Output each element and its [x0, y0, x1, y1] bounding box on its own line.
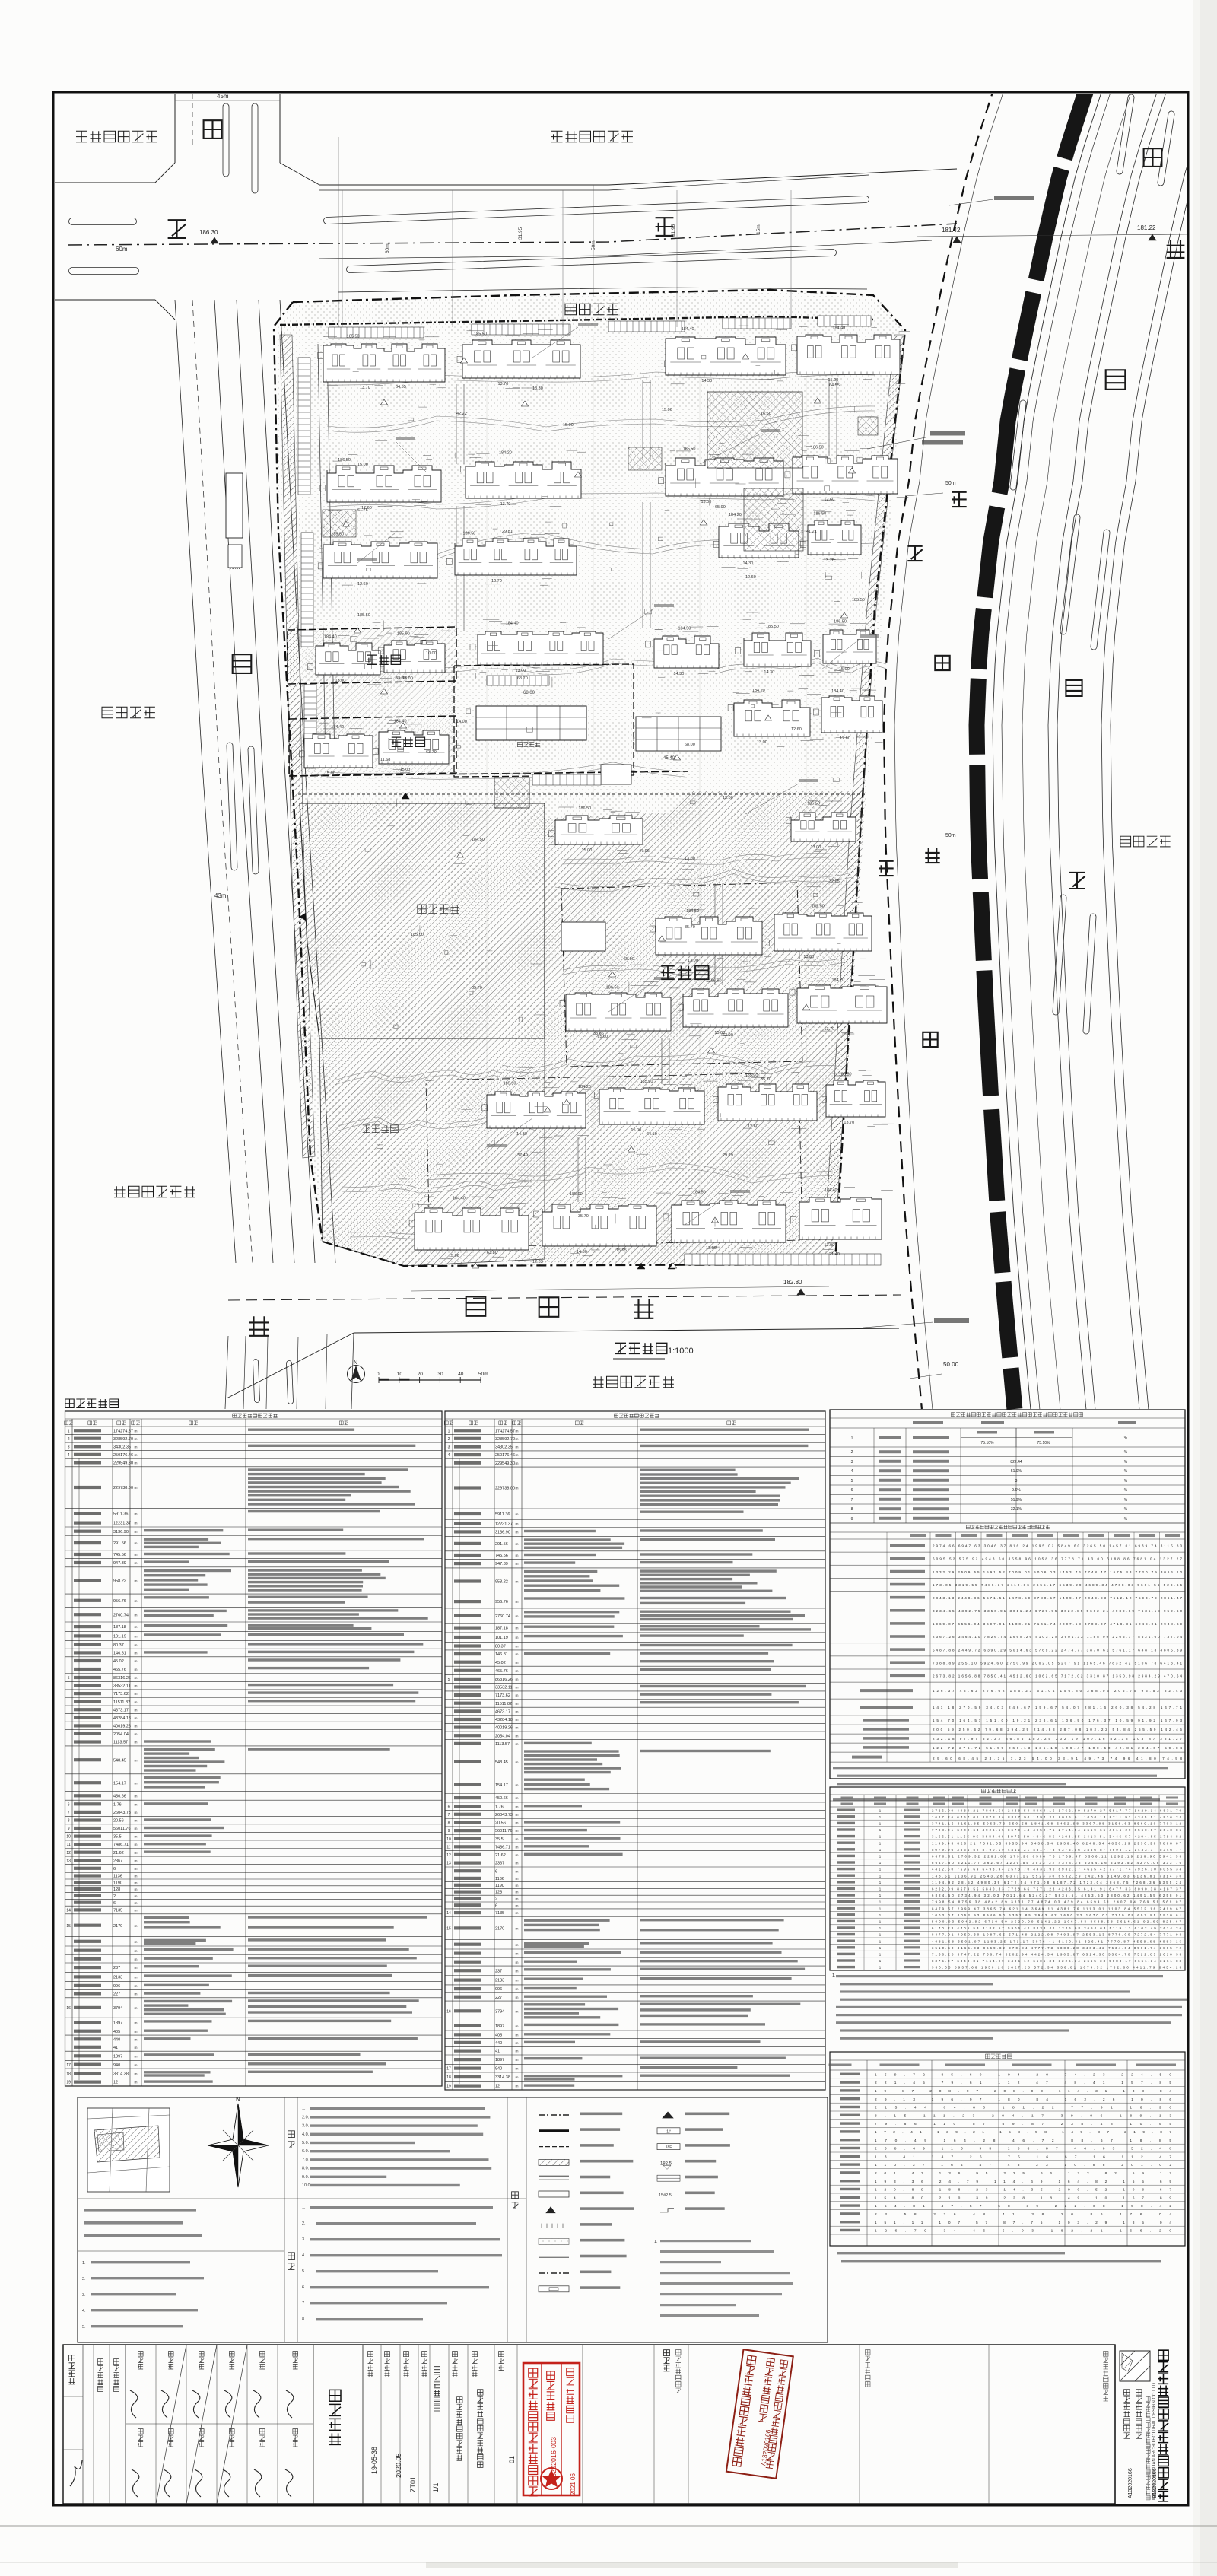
svg-text:6: 6 — [448, 1805, 450, 1809]
svg-text:26043.73: 26043.73 — [113, 1811, 131, 1815]
svg-text:996: 996 — [113, 1984, 120, 1989]
svg-text:m: m — [516, 1870, 519, 1874]
svg-text:5.0.: 5.0. — [302, 2141, 310, 2145]
svg-text:17: 17 — [446, 2067, 451, 2072]
svg-text:947.39: 947.39 — [495, 1562, 508, 1566]
svg-text:186.50: 186.50 — [463, 531, 476, 536]
svg-text:64.55: 64.55 — [396, 385, 406, 390]
svg-text:11: 11 — [446, 1845, 450, 1849]
svg-text:m: m — [516, 1543, 519, 1547]
svg-text:56011.76: 56011.76 — [495, 1829, 513, 1833]
svg-text:m: m — [135, 1852, 138, 1856]
svg-text:8647.60 2211.77 362.67 1230.55: 8647.60 2211.77 362.67 1230.55 3533.32 4… — [932, 1861, 1182, 1865]
svg-text:12: 12 — [446, 1853, 451, 1858]
svg-text:m: m — [135, 2046, 138, 2050]
svg-text:21.62: 21.62 — [495, 1853, 506, 1858]
svg-text:m: m — [516, 1838, 519, 1842]
svg-text:450.66: 450.66 — [113, 1794, 126, 1798]
svg-text:6: 6 — [495, 1903, 497, 1908]
svg-text:185.90: 185.90 — [745, 1073, 758, 1078]
svg-text:12.60: 12.60 — [824, 498, 834, 502]
svg-text:12.83: 12.83 — [532, 1260, 543, 1264]
svg-text:m: m — [135, 1430, 138, 1433]
svg-text:40019.26: 40019.26 — [113, 1725, 131, 1729]
svg-text:%: % — [1124, 1450, 1128, 1455]
svg-text:2367: 2367 — [495, 1862, 504, 1866]
svg-text:35.70: 35.70 — [472, 986, 482, 991]
svg-text:18.30: 18.30 — [532, 386, 543, 391]
svg-text:15.00: 15.00 — [631, 1128, 641, 1133]
svg-text:2054.04: 2054.04 — [495, 1734, 510, 1738]
svg-text:%: % — [1124, 1498, 1128, 1503]
svg-text:11: 11 — [67, 1843, 71, 1847]
svg-text:128: 128 — [495, 1891, 502, 1895]
svg-text:14.30: 14.30 — [743, 561, 754, 566]
svg-text:3: 3 — [68, 1445, 70, 1449]
svg-text:184.50: 184.50 — [472, 838, 485, 842]
svg-text:m: m — [516, 1719, 519, 1722]
svg-text:35.5: 35.5 — [495, 1837, 504, 1842]
svg-text:43284.18: 43284.18 — [495, 1718, 513, 1722]
svg-text:33532.11: 33532.11 — [113, 1684, 131, 1689]
svg-text:m: m — [135, 1445, 138, 1449]
svg-text:m: m — [516, 1735, 519, 1738]
svg-text:m: m — [135, 1895, 138, 1899]
svg-text:185.50: 185.50 — [357, 613, 370, 618]
svg-text:5.: 5. — [302, 2269, 306, 2274]
svg-text:2: 2 — [495, 1897, 497, 1902]
svg-text:6: 6 — [68, 1802, 70, 1807]
svg-text:m: m — [516, 1805, 519, 1809]
svg-text:51.9%: 51.9% — [1011, 1498, 1022, 1503]
svg-text:184.20: 184.20 — [578, 1085, 591, 1089]
svg-text:m: m — [516, 1928, 519, 1932]
svg-text:m: m — [516, 1711, 519, 1715]
svg-text:60m: 60m — [385, 243, 390, 253]
svg-text:2170: 2170 — [113, 1924, 122, 1929]
svg-text:m: m — [516, 1854, 519, 1858]
svg-text:m: m — [135, 1811, 138, 1815]
svg-text:75.10%: 75.10% — [1037, 1441, 1051, 1445]
svg-text:m: m — [135, 1910, 138, 1913]
svg-text:m: m — [516, 1601, 519, 1604]
svg-text:405: 405 — [113, 2030, 120, 2034]
svg-text:15.95: 15.95 — [616, 1248, 627, 1253]
svg-text:181.22: 181.22 — [1137, 224, 1156, 231]
svg-text:26043.73: 26043.73 — [495, 1813, 513, 1818]
svg-text:227: 227 — [495, 1996, 502, 2000]
svg-text:16: 16 — [446, 2009, 451, 2014]
svg-text:958.22: 958.22 — [495, 1580, 508, 1585]
svg-text:7135: 7135 — [113, 1909, 122, 1913]
svg-text:1: 1 — [448, 1429, 450, 1433]
svg-text:13.00: 13.00 — [757, 740, 767, 745]
svg-text:13.70: 13.70 — [824, 1027, 834, 1032]
svg-text:15.00: 15.00 — [400, 768, 411, 772]
svg-text:12231.37: 12231.37 — [495, 1522, 513, 1527]
svg-text:m: m — [516, 2025, 519, 2029]
svg-text:3794: 3794 — [495, 2009, 504, 2014]
svg-text:50.00: 50.00 — [943, 1361, 959, 1368]
svg-text:187.18: 187.18 — [113, 1625, 126, 1630]
svg-text:m: m — [516, 2085, 519, 2089]
svg-text:0: 0 — [377, 1372, 380, 1377]
svg-text:13.00: 13.00 — [803, 955, 814, 959]
svg-text:2054.04: 2054.04 — [113, 1732, 129, 1737]
svg-text:184.20: 184.20 — [832, 978, 845, 983]
svg-text:m: m — [135, 1644, 138, 1648]
svg-text:440: 440 — [113, 2037, 120, 2042]
svg-text:13: 13 — [66, 1859, 71, 1863]
svg-text:m: m — [135, 1782, 138, 1786]
svg-text:2974.66 6947.63 3046.37 816.24: 2974.66 6947.63 3046.37 816.24 1995.02 5… — [933, 1544, 1182, 1548]
svg-text:m: m — [516, 1944, 519, 1948]
svg-text:A132020166: A132020166 — [1128, 2468, 1133, 2498]
svg-text:41: 41 — [495, 2050, 500, 2054]
svg-text:186.50: 186.50 — [606, 986, 619, 991]
svg-text:m: m — [135, 1487, 138, 1490]
svg-text:m: m — [516, 2068, 519, 2072]
svg-text:m: m — [135, 1875, 138, 1879]
svg-text:13: 13 — [446, 1862, 451, 1866]
svg-text:2: 2 — [68, 1437, 70, 1442]
svg-text:12.60: 12.60 — [745, 575, 756, 580]
svg-text:63.60: 63.60 — [396, 676, 406, 681]
svg-text:184.20: 184.20 — [499, 451, 512, 456]
svg-text:m: m — [135, 1902, 138, 1906]
svg-text:14.30: 14.30 — [701, 379, 712, 383]
svg-text:13.00: 13.00 — [685, 857, 695, 861]
svg-text:14.00: 14.00 — [456, 720, 467, 724]
svg-text:4.: 4. — [302, 2253, 306, 2258]
svg-text:101.19: 101.19 — [113, 1635, 126, 1639]
svg-text:m: m — [516, 1797, 519, 1801]
svg-text:13.70: 13.70 — [491, 579, 502, 584]
svg-text:16: 16 — [66, 2006, 71, 2011]
svg-text:1897: 1897 — [113, 2054, 122, 2059]
svg-text:1897: 1897 — [113, 2021, 122, 2025]
svg-text:m: m — [516, 1615, 519, 1619]
svg-text:m: m — [135, 1993, 138, 1997]
svg-text:m: m — [135, 1725, 138, 1729]
svg-text:7: 7 — [68, 1811, 70, 1815]
svg-text:11.68: 11.68 — [380, 758, 390, 762]
svg-text:19: 19 — [66, 2081, 71, 2085]
svg-text:14.30: 14.30 — [577, 1250, 587, 1255]
svg-text:186.50: 186.50 — [813, 511, 826, 516]
svg-text:184.20: 184.20 — [729, 513, 742, 517]
svg-text:7.0.: 7.0. — [302, 2158, 310, 2162]
svg-text:m: m — [516, 1462, 519, 1466]
svg-text:2: 2 — [113, 1894, 116, 1899]
svg-text:6670.01 2709.32 2261.86 179.98: 6670.01 2709.32 2261.86 179.98 8506.75 2… — [932, 1855, 1182, 1859]
svg-text:35.70: 35.70 — [578, 1214, 589, 1219]
svg-text:61.75: 61.75 — [357, 508, 368, 513]
svg-text:3.: 3. — [302, 2237, 306, 2242]
svg-text:2760.74: 2760.74 — [113, 1613, 129, 1617]
svg-text:182.80: 182.80 — [783, 1279, 802, 1286]
svg-text:1113.57: 1113.57 — [495, 1742, 510, 1747]
svg-text:m: m — [516, 1487, 519, 1491]
svg-text:m: m — [516, 1438, 519, 1442]
svg-text:m: m — [135, 1733, 138, 1737]
svg-text:m: m — [135, 1677, 138, 1681]
svg-text:m: m — [516, 2034, 519, 2037]
svg-text:42.22: 42.22 — [456, 412, 467, 416]
svg-text:m: m — [135, 1759, 138, 1763]
svg-text:15.00: 15.00 — [839, 667, 850, 672]
svg-text:m: m — [516, 1662, 519, 1665]
svg-text:19: 19 — [446, 2085, 451, 2089]
svg-text:%: % — [1124, 1436, 1128, 1441]
svg-text:185.00: 185.00 — [411, 933, 424, 937]
svg-text:8.0.: 8.0. — [302, 2167, 310, 2171]
svg-text:154.17: 154.17 — [113, 1781, 126, 1786]
svg-text:m: m — [135, 1967, 138, 1970]
svg-text:15: 15 — [66, 1924, 71, 1929]
svg-text:m: m — [135, 1579, 138, 1583]
svg-text:7135: 7135 — [495, 1911, 504, 1916]
svg-text:65.90: 65.90 — [715, 505, 726, 510]
svg-text:m: m — [135, 1709, 138, 1713]
svg-text:185.50: 185.50 — [474, 332, 487, 336]
svg-text:2367: 2367 — [113, 1859, 122, 1863]
svg-text:237: 237 — [495, 1969, 502, 1973]
svg-text:m: m — [135, 1438, 138, 1442]
svg-text:m: m — [135, 1950, 138, 1954]
svg-text:184.50: 184.50 — [678, 626, 691, 631]
svg-text:5: 5 — [851, 1479, 853, 1484]
svg-text:956.76: 956.76 — [495, 1600, 508, 1604]
svg-text:146.81: 146.81 — [113, 1652, 126, 1656]
svg-text:2170: 2170 — [495, 1927, 504, 1932]
svg-text:35.5: 35.5 — [113, 1835, 122, 1840]
svg-text:m: m — [135, 2038, 138, 2042]
svg-text:m: m — [516, 2076, 519, 2080]
svg-text:1: 1 — [851, 1436, 853, 1441]
svg-text:1.: 1. — [654, 2240, 658, 2244]
svg-text:43284.18: 43284.18 — [113, 1716, 131, 1721]
svg-text:29.81: 29.81 — [502, 530, 513, 534]
svg-text:m: m — [516, 1703, 519, 1706]
svg-text:4.0.: 4.0. — [302, 2132, 310, 2137]
svg-text:N: N — [354, 1360, 357, 1366]
svg-text:50m: 50m — [591, 240, 596, 250]
svg-text:12.60: 12.60 — [791, 727, 802, 732]
svg-text:m: m — [516, 1862, 519, 1866]
svg-text:15.00: 15.00 — [449, 1254, 459, 1258]
svg-text:40019.26: 40019.26 — [495, 1726, 513, 1731]
svg-text:37.49: 37.49 — [517, 1153, 528, 1158]
svg-text:m: m — [516, 1904, 519, 1908]
svg-text:N: N — [236, 2096, 240, 2103]
svg-text:3: 3 — [851, 1460, 853, 1465]
svg-text:m: m — [516, 2050, 519, 2054]
svg-text:181.42: 181.42 — [942, 227, 961, 234]
svg-text:185.50: 185.50 — [683, 447, 696, 451]
svg-text:41.21: 41.21 — [806, 530, 817, 534]
svg-text:13.70: 13.70 — [844, 1121, 854, 1125]
svg-text:m: m — [135, 1668, 138, 1672]
svg-text:m: m — [135, 1454, 138, 1458]
svg-text:80.37: 80.37 — [495, 1645, 506, 1649]
svg-text:m: m — [135, 2031, 138, 2034]
svg-text:7173.62: 7173.62 — [495, 1693, 510, 1698]
svg-text:940: 940 — [113, 2063, 120, 2068]
svg-text:7150.28 6747.22 756.74 8202.94: 7150.28 6747.22 756.74 8202.94 4424.54 1… — [932, 1953, 1182, 1957]
svg-text:m: m — [135, 1652, 138, 1656]
svg-text:1/1: 1/1 — [432, 2482, 440, 2492]
svg-text:4.: 4. — [82, 2309, 86, 2314]
svg-text:21.62: 21.62 — [113, 1851, 124, 1856]
svg-text:m: m — [135, 1985, 138, 1989]
svg-text:10: 10 — [66, 1835, 71, 1840]
svg-text:15.00: 15.00 — [563, 423, 574, 428]
svg-text:7486.71: 7486.71 — [113, 1843, 129, 1847]
svg-text:4081.68 3501.97 1183.25 171.17: 4081.68 3501.97 1183.25 171.17 3076.41 5… — [932, 1939, 1182, 1943]
svg-text:9: 9 — [448, 1829, 450, 1833]
svg-text:101.19: 101.19 — [495, 1636, 508, 1640]
svg-text:4: 4 — [851, 1469, 853, 1474]
svg-text:m: m — [135, 1554, 138, 1557]
svg-text:63.70: 63.70 — [517, 676, 528, 681]
svg-text:30: 30 — [437, 1372, 443, 1377]
svg-text:60m: 60m — [116, 246, 128, 253]
svg-text:45.02: 45.02 — [113, 1659, 124, 1664]
svg-text:%: % — [1124, 1479, 1128, 1484]
svg-text:9.0.: 9.0. — [302, 2175, 310, 2180]
svg-text:m: m — [135, 1741, 138, 1745]
svg-text:m: m — [516, 1646, 519, 1649]
svg-text:1190: 1190 — [495, 1884, 504, 1888]
svg-text:3: 3 — [448, 1445, 450, 1450]
svg-text:80.37: 80.37 — [113, 1643, 124, 1648]
svg-text:m: m — [135, 1542, 138, 1546]
svg-text:10.00: 10.00 — [426, 651, 437, 656]
svg-text:7: 7 — [448, 1813, 450, 1818]
svg-text:31.95: 31.95 — [671, 224, 676, 237]
svg-text:14.30: 14.30 — [516, 1132, 527, 1137]
svg-text:m: m — [135, 1888, 138, 1892]
svg-text:m: m — [135, 1977, 138, 1980]
svg-text:3314.38: 3314.38 — [113, 2072, 129, 2076]
svg-text:184.40: 184.40 — [825, 1188, 837, 1193]
svg-text:m: m — [135, 1836, 138, 1840]
svg-text:m: m — [135, 2081, 138, 2085]
svg-text:18: 18 — [66, 2072, 71, 2076]
svg-text:13.00: 13.00 — [723, 796, 733, 800]
svg-text:2133: 2133 — [495, 1979, 504, 1983]
svg-text:33.66: 33.66 — [593, 1032, 604, 1036]
svg-text:11511.82: 11511.82 — [113, 1700, 130, 1705]
svg-text:9: 9 — [68, 1827, 70, 1831]
svg-text:16.50: 16.50 — [761, 412, 771, 416]
svg-text:185.50: 185.50 — [347, 335, 360, 339]
svg-text:m: m — [516, 1988, 519, 1992]
svg-text:14.30: 14.30 — [764, 670, 774, 675]
svg-text:12: 12 — [66, 1851, 71, 1856]
svg-text:75.10%: 75.10% — [981, 1441, 995, 1445]
svg-text:187.18: 187.18 — [495, 1627, 508, 1631]
svg-text:47.96: 47.96 — [639, 849, 650, 854]
svg-text:4: 4 — [448, 1453, 450, 1458]
svg-text:m: m — [516, 2042, 519, 2046]
svg-text:184.20: 184.20 — [752, 689, 765, 693]
svg-text:35.70: 35.70 — [761, 1077, 771, 1082]
svg-text:m: m — [516, 1554, 519, 1558]
svg-text:12.60: 12.60 — [840, 736, 850, 741]
svg-text:184.40: 184.40 — [831, 689, 844, 694]
svg-text:m: m — [516, 1891, 519, 1895]
svg-text:3136.90: 3136.90 — [495, 1531, 510, 1535]
svg-text:548.45: 548.45 — [113, 1758, 126, 1763]
svg-text:m: m — [516, 1784, 519, 1788]
svg-text:9.6%: 9.6% — [1012, 1488, 1021, 1493]
svg-text:186.50: 186.50 — [338, 458, 351, 463]
svg-text:m: m — [135, 1843, 138, 1847]
svg-text:13.00: 13.00 — [335, 679, 346, 683]
svg-text:%: % — [1124, 1469, 1128, 1474]
svg-text:20.56: 20.56 — [113, 1819, 124, 1824]
svg-text:3510.50 4165.33 8669.82 970.84: 3510.50 4165.33 8669.82 970.84 4777.73 4… — [932, 1946, 1182, 1950]
svg-text:13.70: 13.70 — [500, 502, 511, 507]
svg-text:m: m — [135, 1827, 138, 1831]
svg-text:m: m — [516, 1653, 519, 1657]
svg-text:3.0.: 3.0. — [302, 2124, 310, 2129]
svg-text:m: m — [135, 1660, 138, 1664]
svg-text:185.90: 185.90 — [504, 1081, 516, 1086]
svg-text:186.50: 186.50 — [834, 619, 847, 624]
svg-text:m: m — [516, 1884, 519, 1888]
svg-text:13.70: 13.70 — [824, 558, 834, 563]
svg-text:m: m — [516, 1670, 519, 1674]
svg-text:17: 17 — [66, 2063, 71, 2068]
svg-text:1.76: 1.76 — [495, 1805, 504, 1809]
svg-text:34302.35: 34302.35 — [113, 1445, 131, 1449]
svg-text:405: 405 — [495, 2033, 502, 2037]
svg-text:m: m — [135, 1881, 138, 1885]
svg-text:86316.26: 86316.26 — [113, 1676, 131, 1681]
svg-text:m: m — [135, 1600, 138, 1604]
svg-text:19-05-38: 19-05-38 — [370, 2447, 378, 2474]
svg-text:18: 18 — [446, 2075, 451, 2080]
svg-text:2.: 2. — [302, 2221, 306, 2226]
svg-text:m: m — [516, 1563, 519, 1566]
svg-text:50m: 50m — [945, 833, 956, 838]
svg-text:12: 12 — [495, 2085, 500, 2089]
svg-text:6: 6 — [495, 1869, 497, 1874]
svg-text:1#: 1# — [666, 2129, 671, 2134]
svg-text:%: % — [1124, 1517, 1128, 1522]
svg-text:12.60: 12.60 — [357, 582, 368, 587]
svg-text:6.0.: 6.0. — [302, 2149, 310, 2154]
svg-text:m: m — [516, 1523, 519, 1527]
svg-text:2.0.: 2.0. — [302, 2115, 310, 2120]
svg-text:6824.50 2734.94 32.03 7011.64: 6824.50 2734.94 32.03 7011.64 5240.27 58… — [932, 1894, 1182, 1897]
svg-text:64.55: 64.55 — [829, 383, 840, 388]
svg-text:958.22: 958.22 — [113, 1579, 126, 1583]
svg-text:m: m — [516, 1694, 519, 1698]
svg-text:m: m — [135, 2072, 138, 2076]
svg-text:154.17: 154.17 — [495, 1783, 508, 1788]
svg-text:B132020166: B132020166 — [1152, 2468, 1158, 2498]
svg-text:330.05 8937.66 1936.28 1627.28: 330.05 8937.66 1936.28 1627.28 572.34 33… — [932, 1966, 1182, 1970]
svg-text:43m: 43m — [214, 892, 227, 899]
svg-text:184.40: 184.40 — [394, 719, 407, 724]
svg-text:m: m — [516, 1878, 519, 1881]
svg-text:32.05: 32.05 — [829, 879, 840, 884]
svg-text:6: 6 — [851, 1488, 853, 1493]
